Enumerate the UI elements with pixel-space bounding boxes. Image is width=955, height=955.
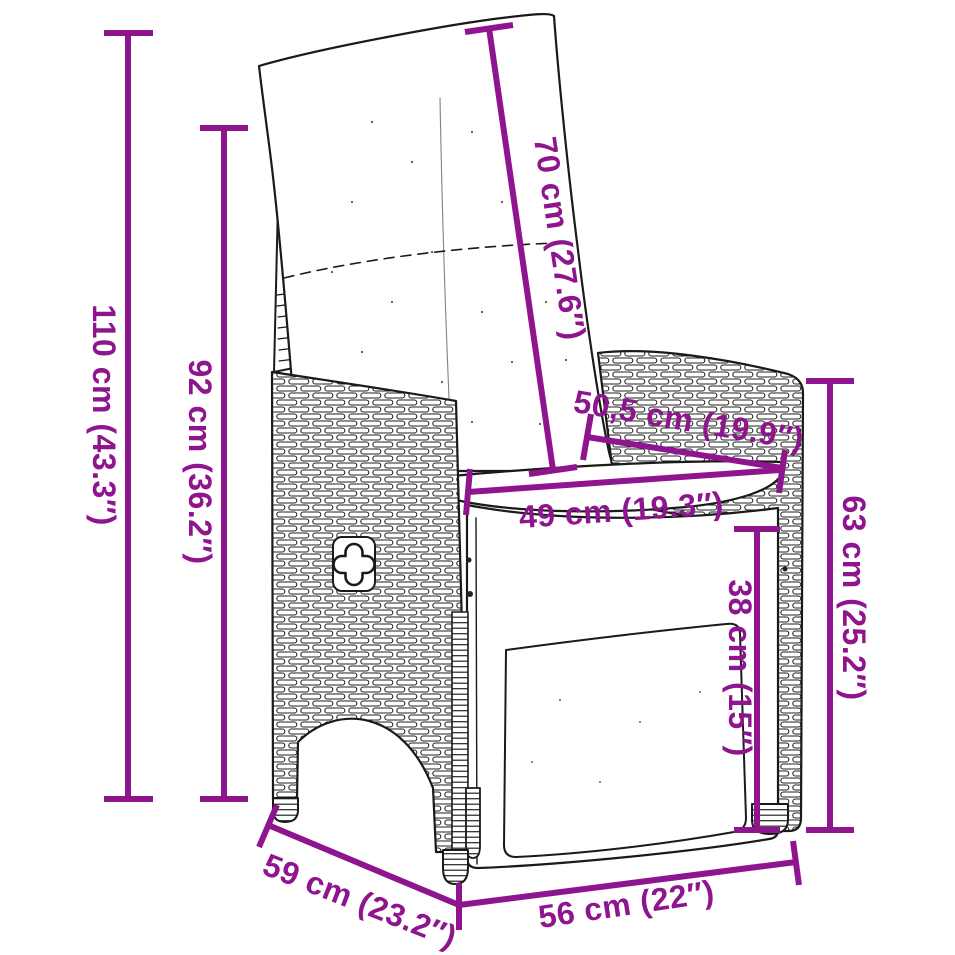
right-strip-bolt xyxy=(783,567,788,572)
recline-bolt-lower xyxy=(467,591,473,597)
dimension-label-seat-height: 38 cm (15″) xyxy=(722,579,758,756)
dimension-label-backrest-height: 92 cm (36.2″) xyxy=(182,359,218,564)
front-left-foot xyxy=(443,850,468,884)
dimension-diagram-page: 110 cm (43.3″) 92 cm (36.2″) 70 cm (27.6… xyxy=(0,0,955,955)
garden-chair-dimension-diagram: 110 cm (43.3″) 92 cm (36.2″) 70 cm (27.6… xyxy=(0,0,955,955)
recline-bolt-upper xyxy=(467,558,472,563)
dimension-label-overall-height: 110 cm (43.3″) xyxy=(86,304,122,526)
front-inner-leg xyxy=(466,788,480,858)
dimension-label-armrest-height: 63 cm (25.2″) xyxy=(836,495,872,700)
